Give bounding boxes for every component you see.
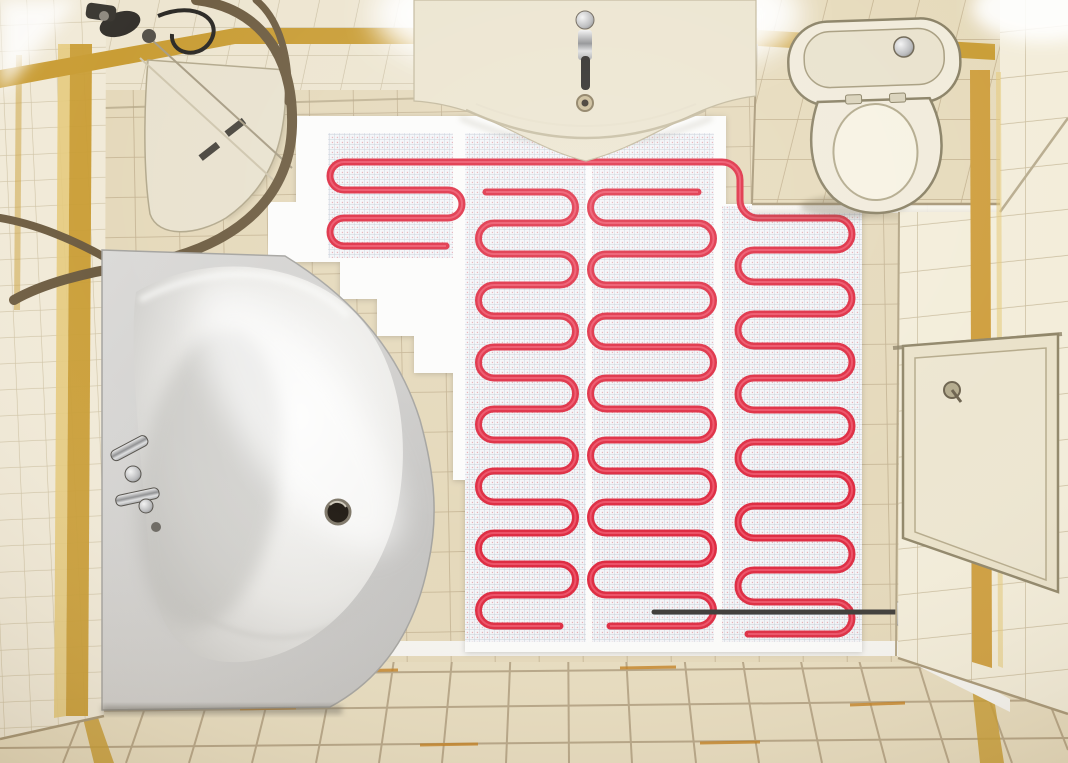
bathroom-floorplan-render — [0, 0, 1068, 763]
bathroom-scene — [0, 0, 1068, 763]
vignette-overlay — [0, 0, 1068, 763]
